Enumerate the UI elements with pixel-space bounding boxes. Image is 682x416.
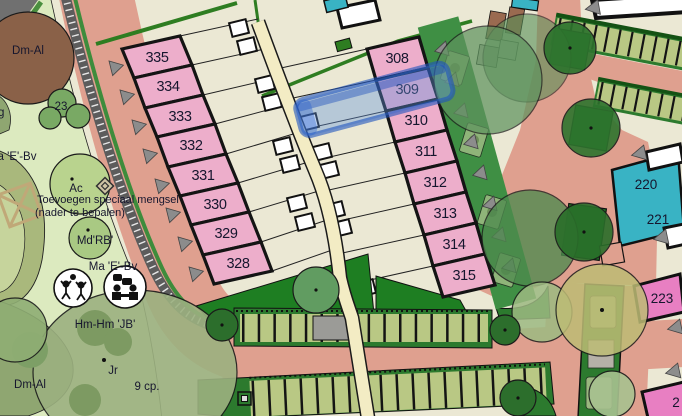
playground-children-icon bbox=[54, 269, 92, 307]
plot-label: 308 bbox=[386, 51, 409, 67]
label-md-rb: Md'RB' bbox=[77, 235, 113, 247]
label-note-line2: (nader te bepalen) bbox=[35, 207, 125, 219]
plot-label: 313 bbox=[434, 206, 457, 222]
label-ma-e-bv: Ma 'E'-Bv bbox=[89, 261, 138, 273]
plot-label: 330 bbox=[204, 197, 227, 213]
parcel-label-partial: 2 bbox=[672, 395, 680, 410]
label-note-line1: Toevoegen speciaal mengsel bbox=[37, 194, 179, 206]
parcel-label-221: 221 bbox=[647, 212, 670, 227]
label-fragment: g bbox=[0, 107, 4, 119]
label-e-bv: a 'E'-Bv bbox=[0, 151, 37, 163]
plot-label: 315 bbox=[453, 268, 476, 284]
parcel-label-220: 220 bbox=[635, 177, 658, 192]
plot-label: 328 bbox=[227, 256, 250, 272]
plot-label: 335 bbox=[146, 50, 169, 66]
plot-label: 333 bbox=[169, 109, 192, 125]
label-hm-jb: Hm-Hm 'JB' bbox=[75, 319, 136, 331]
plot-label: 310 bbox=[405, 113, 428, 129]
label-9cp: 9 cp. bbox=[135, 381, 160, 393]
plot-label: 312 bbox=[424, 175, 447, 191]
parcel-label-223: 223 bbox=[651, 291, 674, 306]
plot-label: 329 bbox=[215, 226, 238, 242]
label-23: 23 bbox=[55, 101, 68, 113]
plot-label: 314 bbox=[443, 237, 466, 253]
label-dm-al-top: Dm-Al bbox=[12, 45, 44, 57]
plot-label: 311 bbox=[415, 144, 437, 160]
plot-label: 332 bbox=[180, 138, 203, 154]
label-dm-al-bottom: Dm-Al bbox=[14, 379, 46, 391]
label-jr: Jr bbox=[108, 365, 118, 377]
plot-label: 331 bbox=[192, 168, 215, 184]
plan-map-canvas[interactable]: 335 334 333 332 331 330 329 328 308 309 … bbox=[0, 0, 682, 416]
plan-map-svg: 335 334 333 332 331 330 329 328 308 309 … bbox=[0, 0, 682, 416]
plot-label: 334 bbox=[157, 79, 180, 95]
